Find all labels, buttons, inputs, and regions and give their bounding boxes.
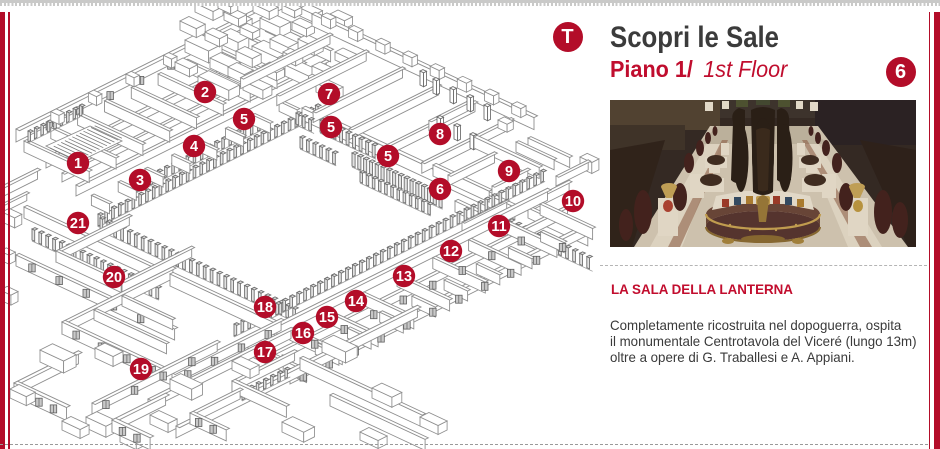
svg-text:21: 21 bbox=[70, 216, 86, 232]
svg-text:17: 17 bbox=[257, 345, 273, 361]
svg-text:19: 19 bbox=[133, 362, 149, 378]
svg-text:12: 12 bbox=[443, 244, 459, 260]
svg-text:6: 6 bbox=[436, 182, 444, 198]
svg-text:11: 11 bbox=[491, 219, 506, 235]
svg-text:8: 8 bbox=[436, 127, 444, 143]
svg-text:4: 4 bbox=[190, 139, 198, 155]
svg-text:13: 13 bbox=[396, 269, 412, 285]
svg-text:1: 1 bbox=[74, 156, 82, 172]
svg-text:2: 2 bbox=[201, 85, 209, 101]
svg-text:18: 18 bbox=[257, 300, 273, 316]
svg-text:10: 10 bbox=[565, 194, 581, 210]
svg-text:3: 3 bbox=[136, 173, 144, 189]
svg-text:5: 5 bbox=[384, 149, 392, 165]
svg-text:9: 9 bbox=[505, 164, 513, 180]
svg-text:20: 20 bbox=[106, 270, 122, 286]
svg-text:7: 7 bbox=[325, 87, 333, 103]
svg-text:14: 14 bbox=[348, 294, 364, 310]
svg-text:5: 5 bbox=[240, 112, 248, 128]
svg-text:5: 5 bbox=[327, 120, 335, 136]
svg-text:16: 16 bbox=[295, 326, 311, 342]
svg-text:15: 15 bbox=[319, 310, 335, 326]
